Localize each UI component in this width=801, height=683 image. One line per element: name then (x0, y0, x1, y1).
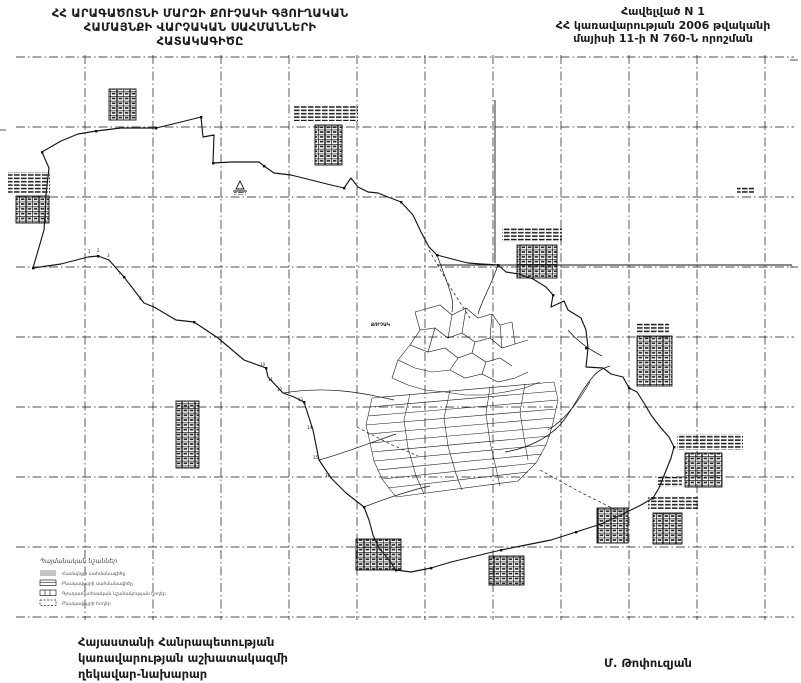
community-boundary: 1 2 3 7 8 10 11 12 13 14 15 16 (32, 116, 675, 572)
boundary-data-stamp (658, 434, 743, 487)
point-number: 14 (307, 425, 313, 430)
point-number: 2 (97, 248, 100, 253)
point-number: 10 (260, 362, 266, 367)
boundary-data-stamp (489, 556, 524, 585)
signature-name: Մ. Թոփուզյան (604, 656, 692, 670)
scanned-map-page: ՀՀ ԱՐԱԳԱԾՈՏՆԻ ՄԱՐԶԻ ՔՈՒՉԱԿԻ ԳՅՈՒՂԱԿԱՆ ՀԱ… (0, 0, 801, 683)
point-number: 12 (277, 387, 283, 392)
point-number: 16 (325, 473, 331, 478)
map-legend: Պայմանական նշաններ Համայնքի սահմանագիծը … (40, 558, 166, 607)
point-number: 13 (298, 397, 304, 402)
geodetic-point-icon (233, 181, 247, 195)
boundary-data-stamp (597, 508, 628, 543)
boundary-data-stamp (356, 539, 401, 570)
boundary-data-stamp (294, 106, 358, 165)
legend-item-label: Գյուղատնտեսական նշանակության հողեր (62, 591, 166, 597)
signatory-title-line: ղեկավար-նախարար (78, 666, 378, 682)
legend-title: Պայմանական նշաններ (40, 558, 117, 565)
signatory-title-line: կառավարության աշխատակազմի (78, 650, 378, 666)
settlement-label: ՔՈՒՉԱԿ (371, 322, 390, 328)
roads-and-streams (283, 250, 622, 513)
map-canvas: 1 2 3 7 8 10 11 12 13 14 15 16 (0, 0, 801, 683)
legend-item-label: Բնակավայրի հողեր (62, 601, 111, 607)
boundary-data-stamp (109, 89, 136, 120)
point-number: 11 (268, 377, 274, 382)
boundary-data-stamp (8, 172, 50, 223)
boundary-data-stamp (637, 323, 672, 386)
boundary-data-stamp (648, 497, 698, 544)
boundary-data-stamp (176, 401, 199, 468)
signatory-title-line: Հայաստանի Հանրապետության (78, 634, 378, 650)
point-number: 3 (107, 253, 110, 258)
point-number: 1 (88, 249, 91, 254)
boundary-data-stamp (737, 186, 754, 194)
boundary-data-stamp (502, 227, 562, 278)
legend-item-label: Բնակավայրի սահմանագիծը (62, 581, 133, 587)
settlement-parcels (366, 305, 558, 497)
boundary-point-ticks (32, 116, 675, 571)
point-number: 15 (313, 455, 319, 460)
boundary-point-numbers: 1 2 3 7 8 10 11 12 13 14 15 16 (88, 248, 331, 478)
signatory-title: Հայաստանի Հանրապետության կառավարության ա… (78, 634, 378, 682)
legend-item-label: Համայնքի սահմանագիծը (62, 571, 125, 577)
